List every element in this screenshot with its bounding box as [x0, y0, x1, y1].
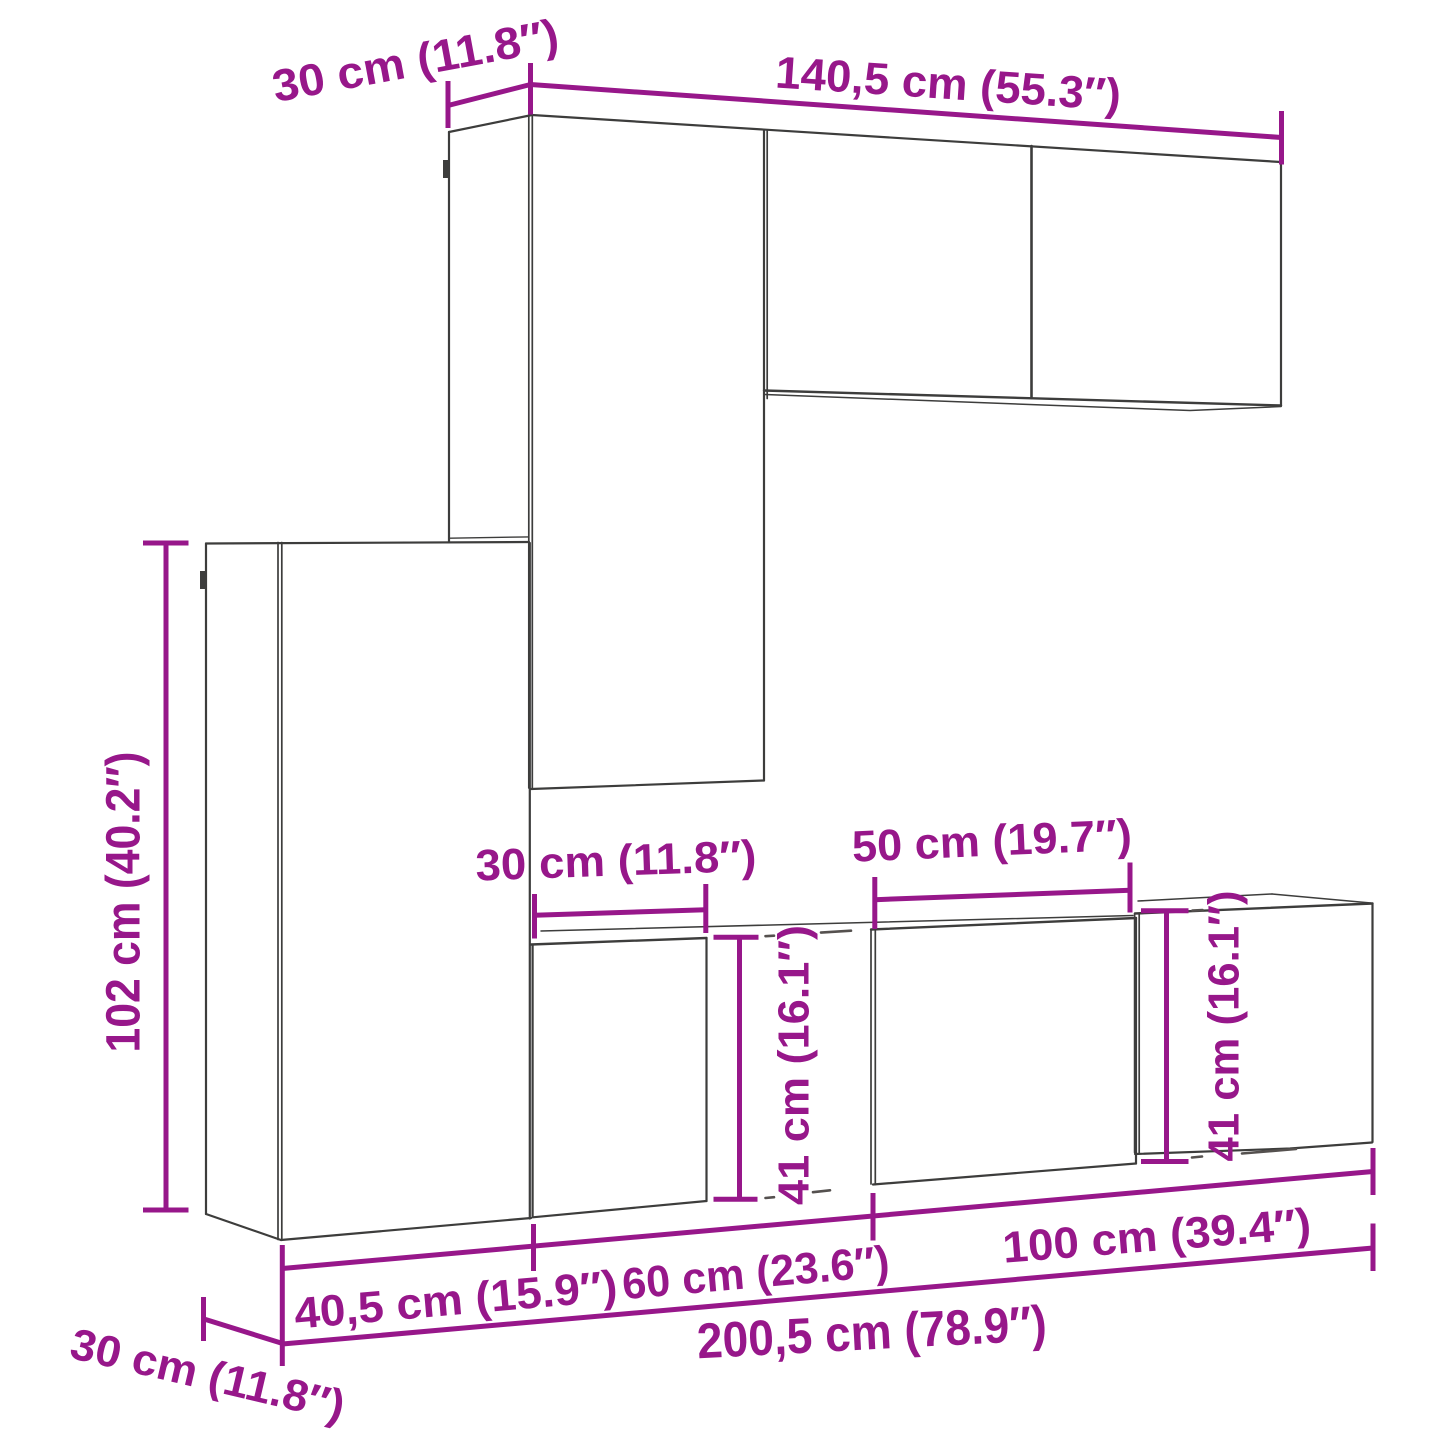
svg-text:41 cm (16.1″): 41 cm (16.1″): [770, 925, 819, 1205]
svg-text:30 cm (11.8″): 30 cm (11.8″): [475, 832, 758, 891]
svg-text:102 cm (40.2″): 102 cm (40.2″): [98, 752, 151, 1053]
svg-text:41 cm (16.1″): 41 cm (16.1″): [1200, 891, 1249, 1162]
